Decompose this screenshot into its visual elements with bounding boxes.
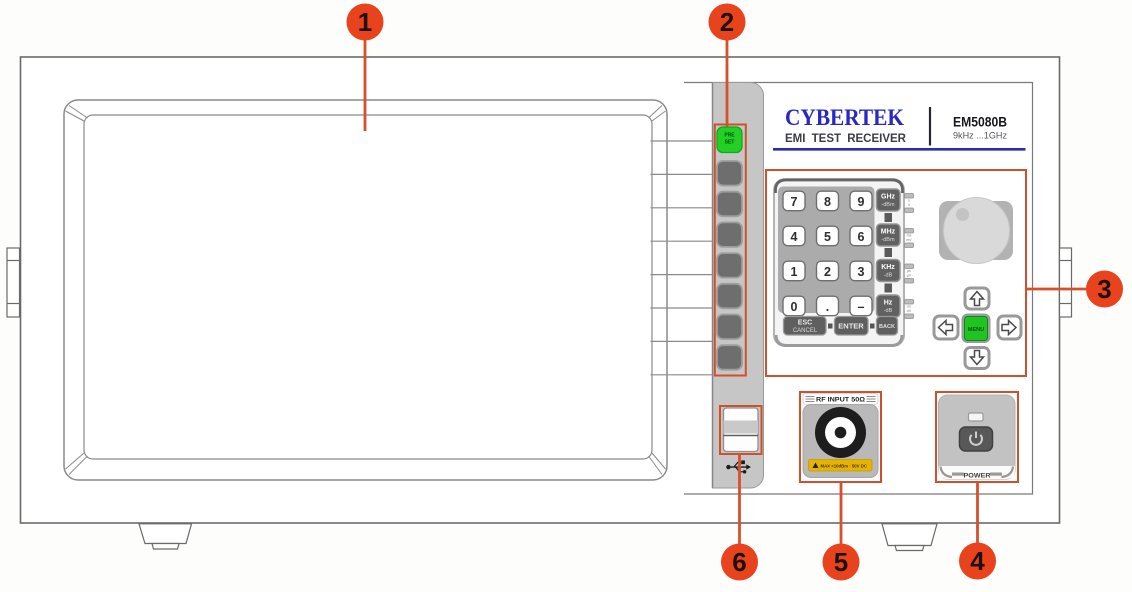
svg-text:3: 3 xyxy=(1097,274,1111,304)
svg-text:nV: nV xyxy=(907,309,912,313)
svg-text:1: 1 xyxy=(358,7,372,37)
svg-text:Hz: Hz xyxy=(884,300,893,307)
svg-text:MAX <10dBm · 50V DC: MAX <10dBm · 50V DC xyxy=(821,464,867,469)
svg-text:SET: SET xyxy=(725,140,735,146)
svg-text:ESC: ESC xyxy=(798,320,812,327)
svg-text:CANCEL: CANCEL xyxy=(793,328,818,334)
svg-text:0: 0 xyxy=(791,300,798,314)
svg-text:KHz: KHz xyxy=(881,264,895,271)
svg-text:–: – xyxy=(858,300,865,314)
svg-text:2: 2 xyxy=(824,265,831,279)
svg-text:-dBm: -dBm xyxy=(881,237,895,243)
svg-text:1: 1 xyxy=(791,265,798,279)
svg-text:ENTER: ENTER xyxy=(838,322,864,331)
svg-text:4: 4 xyxy=(791,230,798,244)
svg-text:MENU: MENU xyxy=(968,327,984,333)
svg-text:8: 8 xyxy=(824,195,831,209)
svg-text:CYBERTEK: CYBERTEK xyxy=(785,105,904,130)
svg-text:ms: ms xyxy=(907,234,912,238)
svg-text:μV: μV xyxy=(907,274,912,278)
svg-text:6: 6 xyxy=(732,547,746,577)
svg-text:-dB: -dB xyxy=(884,273,893,279)
svg-text:BACK: BACK xyxy=(879,324,895,330)
svg-text:5: 5 xyxy=(824,230,831,244)
svg-text:MHz: MHz xyxy=(881,229,896,236)
svg-text:PRE: PRE xyxy=(724,133,735,139)
svg-text:7: 7 xyxy=(791,195,798,209)
svg-text:POWER: POWER xyxy=(964,473,991,480)
svg-text:2: 2 xyxy=(720,7,734,37)
svg-text:4: 4 xyxy=(970,546,985,576)
svg-text:mV: mV xyxy=(906,238,912,242)
svg-text:EM5080B: EM5080B xyxy=(953,114,1007,130)
svg-text:5: 5 xyxy=(834,547,848,577)
svg-text:9kHz ...1GHz: 9kHz ...1GHz xyxy=(953,131,1007,142)
svg-text:6: 6 xyxy=(858,230,865,244)
svg-text:ns: ns xyxy=(907,305,911,309)
svg-text:EMI TEST RECEIVER: EMI TEST RECEIVER xyxy=(785,133,907,145)
svg-text:GHz: GHz xyxy=(881,194,896,201)
svg-text:9: 9 xyxy=(858,195,865,209)
svg-text:.: . xyxy=(826,300,829,314)
svg-text:-dBm: -dBm xyxy=(881,202,895,208)
svg-text:3: 3 xyxy=(858,265,865,279)
svg-text:-dB: -dB xyxy=(884,308,893,314)
svg-text:μs: μs xyxy=(907,269,911,273)
svg-text:s: s xyxy=(908,199,910,203)
svg-text:RF INPUT 50Ω: RF INPUT 50Ω xyxy=(816,398,865,404)
